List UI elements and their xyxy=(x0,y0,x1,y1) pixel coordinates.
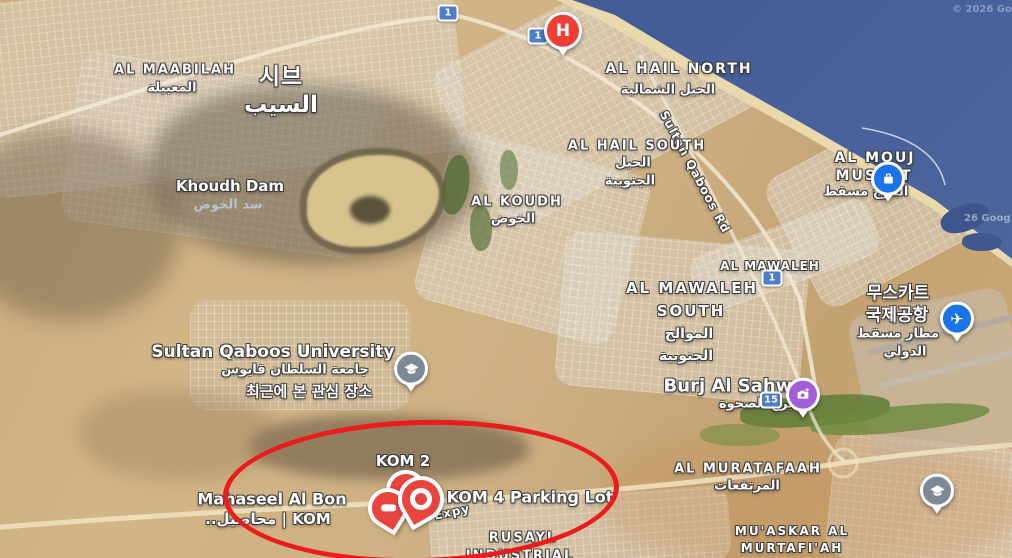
label-al-koudh[interactable]: AL KOUDH xyxy=(471,195,563,210)
al-mouj-saved-place-pin[interactable] xyxy=(871,162,905,202)
pin-tail xyxy=(932,507,942,514)
luggage-icon xyxy=(871,162,905,196)
pin-tail xyxy=(952,335,962,342)
hospital-pin[interactable]: H xyxy=(544,12,582,56)
label-al-mawaleh-south-1[interactable]: AL MAWALEH xyxy=(626,279,758,297)
label-khoudh-dam-ar[interactable]: سد الخوض xyxy=(193,198,262,213)
attraction-pin[interactable] xyxy=(786,378,820,418)
pin-tail xyxy=(883,195,893,202)
pin-tail xyxy=(406,385,416,392)
label-muaskar-2[interactable]: MURTAFI'AH xyxy=(741,541,844,555)
label-khoudh-dam[interactable]: Khoudh Dam xyxy=(176,177,284,195)
label-al-muratafaah[interactable]: AL MURATAFAAH xyxy=(674,462,822,477)
route-shield-1[interactable]: 1 xyxy=(438,5,459,22)
camera-icon xyxy=(786,378,820,412)
label-burj-al-sahwa[interactable]: Burj Al Sahwa xyxy=(664,376,805,397)
label-al-maabilah-ar[interactable]: المعبيلة xyxy=(147,81,196,96)
label-al-mawaleh-south-ar1[interactable]: الموالح xyxy=(665,326,713,342)
label-muaskar-1[interactable]: MU'ASKAR AL xyxy=(735,524,849,538)
label-al-hail-north[interactable]: AL HAIL NORTH xyxy=(605,61,752,77)
label-seeb-ko[interactable]: 시브 xyxy=(259,57,303,91)
airplane-icon: ✈ xyxy=(940,302,974,336)
label-al-maabilah[interactable]: AL MAABILAH xyxy=(114,63,236,78)
satellite-map[interactable]: AL MAABILAH المعبيلة 시브 السيب Khoudh Dam… xyxy=(0,0,1012,558)
label-airport-ar1[interactable]: مطار مسقط xyxy=(857,327,939,342)
label-al-hail-south-ar2[interactable]: الجنوبية xyxy=(605,174,655,189)
label-burj-al-sahwa-ar[interactable]: برج الصحوة xyxy=(719,397,793,412)
route-shield-1[interactable]: 1 xyxy=(762,270,783,287)
label-al-hail-north-ar[interactable]: الحيل الشمالية xyxy=(621,83,715,98)
university-pin[interactable] xyxy=(394,352,428,392)
label-squ[interactable]: Sultan Qaboos University xyxy=(151,342,394,362)
label-squ-ko[interactable]: 최근에 본 관심 장소 xyxy=(246,381,372,402)
label-al-hail-south[interactable]: AL HAIL SOUTH xyxy=(568,139,706,154)
label-seeb-ar[interactable]: السيب xyxy=(244,92,318,118)
route-shield-15[interactable]: 15 xyxy=(760,392,782,409)
hospital-icon: H xyxy=(544,12,582,50)
attribution-text: © 2026 Go xyxy=(952,4,1012,15)
school-pin[interactable] xyxy=(920,474,954,514)
label-squ-ar[interactable]: جامعة السلطان قابوس xyxy=(221,363,368,378)
airport-pin[interactable]: ✈ xyxy=(940,302,974,342)
label-al-mawaleh-south-2[interactable]: SOUTH xyxy=(657,302,726,320)
label-al-hail-south-ar1[interactable]: الحيل xyxy=(615,156,651,171)
attribution-text: 26 Goog xyxy=(964,213,1011,224)
label-al-muratafaah-ar[interactable]: المرتفعات xyxy=(714,479,780,494)
graduation-cap-icon xyxy=(394,352,428,386)
pin-tail xyxy=(798,411,808,418)
label-al-koudh-ar[interactable]: الخوض xyxy=(491,212,535,227)
pin-tail xyxy=(558,49,568,56)
label-airport-ko2[interactable]: 국제공항 xyxy=(866,301,929,326)
label-al-mawaleh-south-ar2[interactable]: الجنوبية xyxy=(659,348,713,364)
graduation-cap-icon xyxy=(920,474,954,508)
label-airport-ar2[interactable]: الدولي xyxy=(884,345,927,360)
